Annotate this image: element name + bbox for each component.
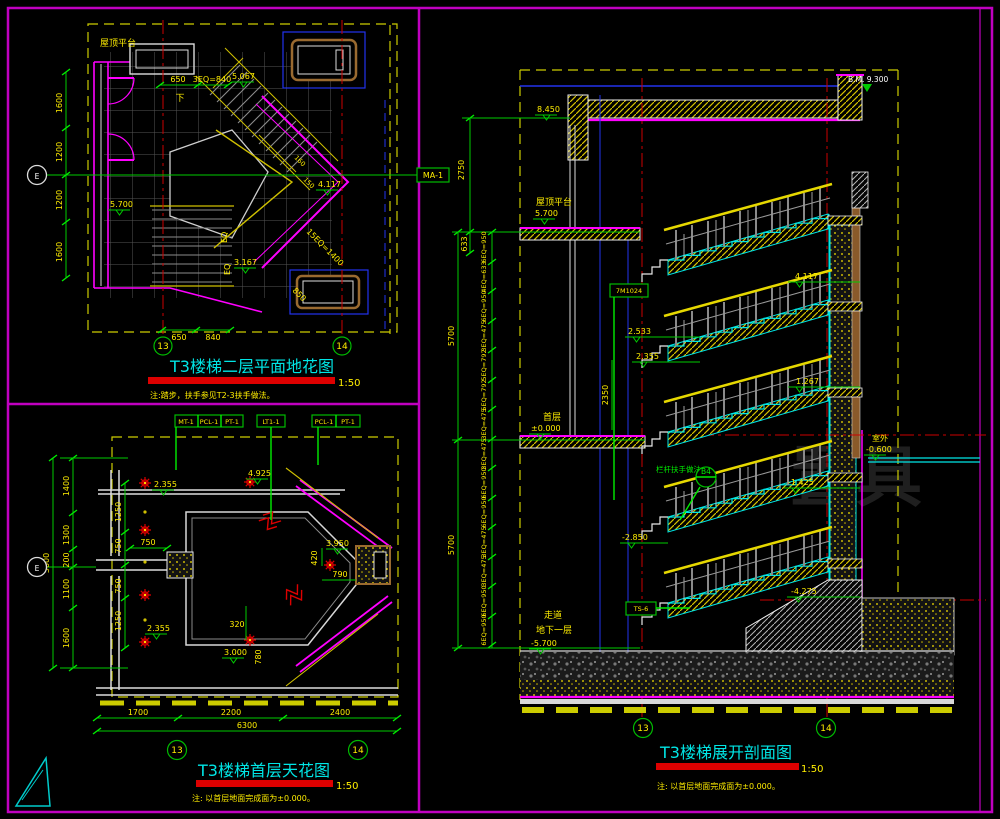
svg-text:633: 633: [460, 236, 469, 251]
ceiling-note: 注: 以首层地面完成面为±0.000。: [192, 793, 315, 803]
svg-text:TS-6: TS-6: [633, 605, 649, 613]
svg-text:-0.600: -0.600: [866, 445, 892, 454]
svg-text:-1.425: -1.425: [788, 478, 814, 487]
section-note: 注: 以首层地面完成面为±0.000。: [657, 781, 780, 791]
svg-text:3EQ=475: 3EQ=475: [480, 320, 488, 351]
svg-text:1400: 1400: [62, 476, 71, 496]
dim-840-bot: 840: [205, 333, 220, 342]
dim-650-top: 650: [170, 75, 185, 84]
svg-text:2.355: 2.355: [636, 352, 659, 361]
svg-text:1250: 1250: [114, 611, 123, 631]
svg-text:2350: 2350: [601, 385, 610, 405]
svg-text:5EQ=792: 5EQ=792: [480, 349, 488, 380]
level-3167: 3.167: [234, 258, 257, 267]
room-label: 屋顶平台: [100, 37, 136, 49]
basement-base: [520, 580, 954, 710]
svg-text:-2.850: -2.850: [622, 533, 648, 542]
ceiling-scale: 1:50: [336, 781, 358, 792]
svg-text:14: 14: [352, 746, 364, 756]
svg-text:1100: 1100: [62, 579, 71, 599]
svg-text:室外: 室外: [872, 433, 888, 443]
dim-650-bot: 650: [171, 333, 186, 342]
plan2f-scale: 1:50: [338, 378, 360, 389]
cad-canvas: 置具: [0, 0, 1000, 819]
parapet-left: [568, 95, 588, 160]
tag-ma1: MA-1: [417, 168, 449, 182]
svg-text:3.000: 3.000: [224, 648, 247, 657]
grid-bubble-14-section: 14: [817, 719, 836, 738]
svg-text:1300: 1300: [62, 525, 71, 545]
svg-text:±0.000: ±0.000: [531, 424, 561, 433]
dim-left-2: 1200: [55, 190, 64, 210]
plan2f-title: T3楼梯二层平面地花图: [169, 357, 334, 376]
left-wall-lines: [570, 125, 575, 436]
svg-text:790: 790: [332, 570, 347, 579]
section-drawing: 7M1024 TS-6 栏杆扶手做法 B4 B.M. 9.300 8.450 屋…: [447, 70, 986, 791]
svg-text:13: 13: [171, 746, 182, 756]
svg-text:4.117: 4.117: [795, 272, 818, 281]
window-strip: [852, 172, 868, 458]
svg-text:屋顶平台: 屋顶平台: [536, 196, 572, 208]
svg-text:2200: 2200: [221, 708, 241, 717]
svg-text:6EQ=950: 6EQ=950: [480, 614, 488, 645]
svg-text:8.450: 8.450: [537, 105, 560, 114]
ceiling-title: T3楼梯首层天花图: [197, 761, 330, 780]
grid-bubble-13-section: 13: [634, 719, 653, 738]
svg-text:栏杆扶手做法: 栏杆扶手做法: [656, 464, 701, 474]
svg-text:-4.275: -4.275: [791, 587, 817, 596]
svg-text:750: 750: [114, 578, 123, 593]
level-5067: 5.067: [232, 72, 255, 81]
svg-text:7M1024: 7M1024: [616, 287, 642, 295]
axis-bubble-e-ceiling: E: [28, 558, 47, 577]
svg-text:2750: 2750: [457, 160, 466, 180]
dim-left-3: 1600: [55, 242, 64, 262]
dim-eq1: EQ: [220, 232, 229, 243]
svg-text:6EQ=950: 6EQ=950: [480, 496, 488, 527]
section-segment-dims: 6EQ=950 4EQ=633 6EQ=950 3EQ=475 5EQ=792 …: [480, 231, 488, 645]
svg-text:320: 320: [229, 620, 244, 629]
svg-text:2400: 2400: [330, 708, 350, 717]
svg-text:5700: 5700: [447, 326, 456, 346]
niche-hatch-right: [356, 546, 390, 584]
grid-bubble-13-ceiling: 13: [168, 741, 187, 760]
svg-text:4.925: 4.925: [248, 469, 271, 478]
level-5700: 5.700: [110, 200, 133, 209]
dim-left-0: 1600: [55, 93, 64, 113]
svg-text:750: 750: [140, 538, 155, 547]
svg-text:PCL-1: PCL-1: [315, 418, 333, 426]
svg-text:B.M. 9.300: B.M. 9.300: [848, 75, 888, 84]
svg-text:1.267: 1.267: [796, 377, 819, 386]
svg-text:B4: B4: [701, 467, 711, 476]
svg-text:MT-1: MT-1: [178, 418, 193, 426]
svg-text:420: 420: [310, 550, 319, 565]
svg-text:首层: 首层: [543, 411, 561, 423]
svg-text:3EQ=475: 3EQ=475: [480, 408, 488, 439]
roof-slab: [568, 100, 860, 118]
svg-text:E: E: [35, 172, 40, 181]
svg-text:6EQ=950: 6EQ=950: [480, 467, 488, 498]
section-title: T3楼梯展开剖面图: [659, 743, 792, 762]
svg-text:1600: 1600: [62, 628, 71, 648]
svg-text:LT1-1: LT1-1: [262, 418, 279, 426]
svg-text:2.355: 2.355: [147, 624, 170, 633]
section-scale: 1:50: [801, 764, 823, 775]
skylight-top-right: [283, 32, 365, 88]
svg-text:14: 14: [336, 342, 348, 352]
svg-text:PCL-1: PCL-1: [200, 418, 218, 426]
plan2f-note: 注:踏步，扶手参见T2-3扶手做法。: [150, 390, 275, 400]
svg-text:E: E: [35, 564, 40, 573]
column-hatch-left: [167, 552, 193, 578]
svg-text:MA-1: MA-1: [423, 171, 443, 180]
svg-text:3.950: 3.950: [326, 539, 349, 548]
axis-bubble-e: E: [28, 166, 47, 185]
grid-bubble-14-ceiling: 14: [349, 741, 368, 760]
plan2f-title-underline: [148, 377, 335, 384]
svg-text:3EQ=475: 3EQ=475: [480, 555, 488, 586]
svg-text:6300: 6300: [237, 721, 257, 730]
roof-platform-slab: [520, 228, 640, 240]
first-floor-slab: [520, 436, 645, 448]
svg-text:13: 13: [157, 342, 168, 352]
ceiling-void: [186, 512, 356, 645]
grid-bubble-14: 14: [333, 337, 351, 355]
svg-text:地下一层: 地下一层: [536, 624, 572, 636]
svg-text:6EQ=950: 6EQ=950: [480, 585, 488, 616]
svg-text:5EQ=792: 5EQ=792: [480, 379, 488, 410]
svg-text:780: 780: [254, 649, 263, 664]
svg-text:200: 200: [62, 552, 71, 567]
svg-text:-5.700: -5.700: [531, 639, 557, 648]
svg-text:750: 750: [114, 538, 123, 553]
section-title-underline: [656, 763, 799, 770]
svg-text:3EQ=475: 3EQ=475: [480, 438, 488, 469]
svg-text:6EQ=950: 6EQ=950: [480, 290, 488, 321]
ceiling-title-underline: [196, 780, 333, 787]
svg-text:PT-1: PT-1: [341, 418, 355, 426]
svg-text:13: 13: [637, 724, 648, 734]
dim-3eq840: 3EQ=840: [193, 75, 231, 84]
svg-text:2.355: 2.355: [154, 480, 177, 489]
corner-logo: [16, 758, 50, 806]
svg-text:6EQ=950: 6EQ=950: [480, 231, 488, 262]
down-label: 下: [175, 94, 184, 104]
svg-text:5700: 5700: [447, 535, 456, 555]
svg-text:PT-1: PT-1: [225, 418, 239, 426]
ceiling-1f-drawing: MT-1 PCL-1 PT-1 LT1-1 PCL-1 PT-1 2.355 4…: [28, 415, 402, 803]
level-4117: 4.117: [318, 180, 341, 189]
svg-text:14: 14: [820, 724, 832, 734]
svg-text:1700: 1700: [128, 708, 148, 717]
svg-text:2.533: 2.533: [628, 327, 651, 336]
svg-text:走道: 走道: [544, 609, 562, 621]
svg-text:1250: 1250: [114, 502, 123, 522]
grid-bubble-13: 13: [154, 337, 172, 355]
svg-text:5.700: 5.700: [535, 209, 558, 218]
svg-text:4EQ=633: 4EQ=633: [480, 261, 488, 292]
dim-eq2: EQ: [223, 264, 232, 275]
plan-2f-drawing: 屋顶平台 650 3EQ=840 下 5.067 4.117 3.167 5.7…: [28, 20, 450, 400]
cad-drawing: 置具: [0, 0, 1000, 819]
svg-text:3EQ=475: 3EQ=475: [480, 526, 488, 557]
dim-left-1: 1200: [55, 142, 64, 162]
